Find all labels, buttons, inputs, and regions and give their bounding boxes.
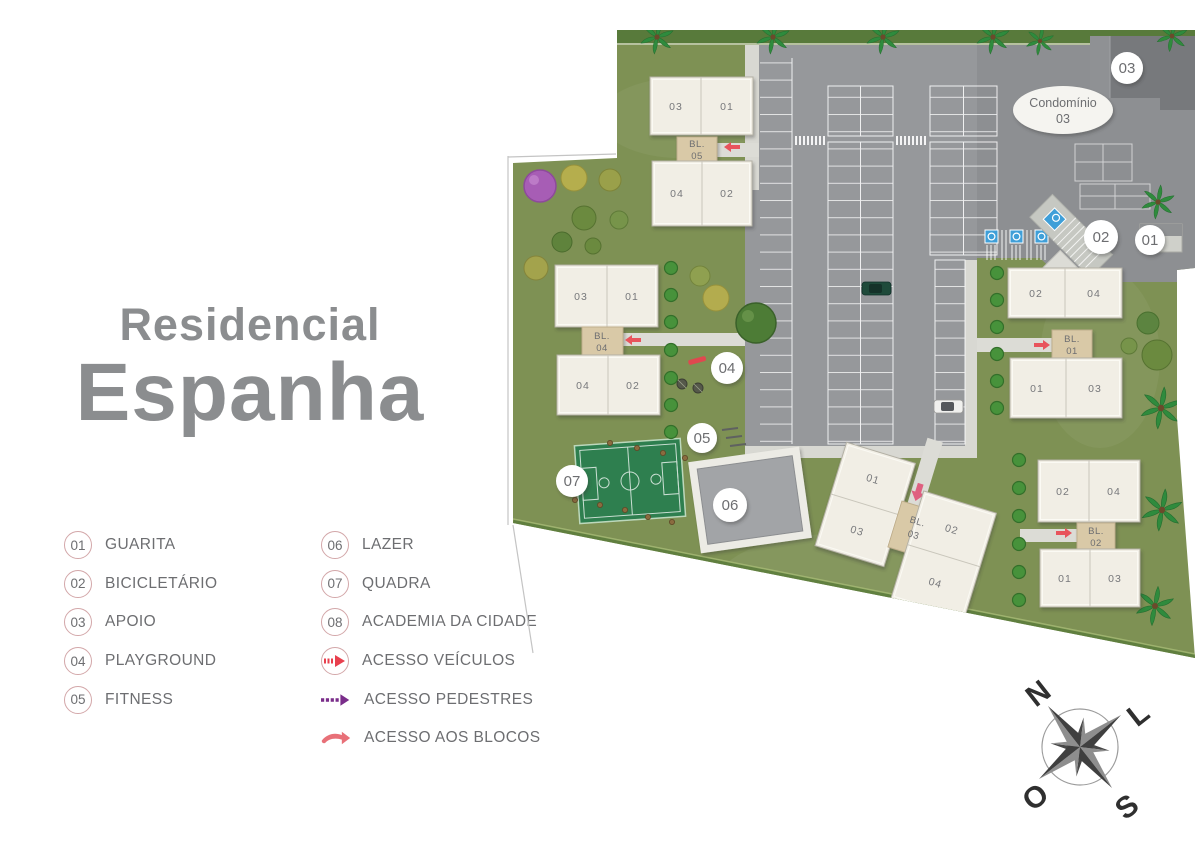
bl04-unit-tl: 03 (574, 291, 588, 303)
bl05-label-line2: 05 (691, 151, 703, 162)
marker-07-quadra: 07 (564, 473, 581, 490)
legend-item-bicicletario: 02 BICICLETÁRIO (64, 565, 217, 604)
bl02-unit-tr: 04 (1107, 486, 1121, 498)
bl05-unit-bl: 04 (670, 188, 684, 200)
legend-label-quadra: QUADRA (362, 575, 431, 593)
legend-num-06: 06 (321, 531, 349, 559)
bl02-unit-bl: 01 (1058, 573, 1072, 585)
bl01-unit-bl: 01 (1030, 383, 1044, 395)
compass-rose: N L O S (985, 655, 1180, 848)
condominio-oval (1013, 86, 1113, 134)
compass-north-label: N (1020, 674, 1057, 713)
legend-label-acesso-blocos: ACESSO AOS BLOCOS (364, 729, 541, 747)
legend-label-apoio: APOIO (105, 613, 156, 631)
page-title: Residencial Espanha (55, 300, 445, 434)
legend-num-04: 04 (64, 647, 92, 675)
bl01-label-line1: BL. (1064, 334, 1080, 345)
sports-court (574, 438, 685, 523)
condo-label-line2: 03 (1056, 112, 1070, 126)
legend-label-lazer: LAZER (362, 536, 414, 554)
legend-label-acesso-veiculos: ACESSO VEÍCULOS (362, 652, 515, 670)
marker-05-fitness: 05 (694, 430, 711, 447)
legend-num-08: 08 (321, 608, 349, 636)
site-plan: 01 03 02 04 BL. 03 (500, 28, 1200, 678)
marker-06-lazer: 06 (722, 497, 739, 514)
parked-car-white (934, 400, 963, 413)
compass-south-label: S (1109, 788, 1145, 826)
legend-label-playground: PLAYGROUND (105, 652, 216, 670)
legend-num-05: 05 (64, 686, 92, 714)
bl05-unit-tl: 03 (669, 101, 683, 113)
legend-label-fitness: FITNESS (105, 691, 173, 709)
bl05-unit-tr: 01 (720, 101, 734, 113)
vehicle-access-icon (321, 647, 349, 675)
compass-west-label: O (1016, 777, 1055, 817)
bl01-unit-br: 03 (1088, 383, 1102, 395)
condo-label-line1: Condomínio (1029, 96, 1096, 110)
legend-num-02: 02 (64, 570, 92, 598)
legend-num-03: 03 (64, 608, 92, 636)
bl04-unit-tr: 01 (625, 291, 639, 303)
marker-03-apoio: 03 (1119, 60, 1136, 77)
bl04-label-line1: BL. (594, 331, 610, 342)
bl04-unit-bl: 04 (576, 380, 590, 392)
legend-num-07: 07 (321, 570, 349, 598)
bl04-unit-br: 02 (626, 380, 640, 392)
bl02-unit-br: 03 (1108, 573, 1122, 585)
block-access-icon (321, 729, 351, 747)
purple-tree (524, 170, 556, 202)
legend-item-apoio: 03 APOIO (64, 603, 217, 642)
legend-label-acesso-pedestres: ACESSO PEDESTRES (364, 691, 533, 709)
compass-east-label: L (1121, 696, 1156, 733)
marker-04-playground: 04 (719, 360, 736, 377)
bl02-unit-tl: 02 (1056, 486, 1070, 498)
bl05-unit-br: 02 (720, 188, 734, 200)
bl01-label-line2: 01 (1066, 346, 1078, 357)
legend-item-guarita: 01 GUARITA (64, 526, 217, 565)
bl02-label-line2: 02 (1090, 538, 1102, 549)
marker-01-guarita: 01 (1142, 232, 1159, 249)
legend-num-01: 01 (64, 531, 92, 559)
pedestrian-access-icon (321, 692, 351, 708)
legend-item-fitness: 05 FITNESS (64, 680, 217, 719)
legend-item-acesso-blocos: ACESSO AOS BLOCOS (321, 719, 541, 758)
title-line-residencial: Residencial (55, 300, 445, 350)
page: Residencial Espanha 01 GUARITA 02 BICICL… (0, 0, 1200, 848)
bl05-label-line1: BL. (689, 139, 705, 150)
lazer-area (688, 447, 812, 554)
bl02-label-line1: BL. (1088, 526, 1104, 537)
legend-item-acesso-pedestres: ACESSO PEDESTRES (321, 680, 541, 719)
legend-label-bicicletario: BICICLETÁRIO (105, 575, 217, 593)
bl01-unit-tl: 02 (1029, 288, 1043, 300)
bl01-unit-tr: 04 (1087, 288, 1101, 300)
marker-02-bicicletario: 02 (1093, 229, 1110, 246)
legend-column-1: 01 GUARITA 02 BICICLETÁRIO 03 APOIO 04 P… (64, 526, 217, 719)
title-line-espanha: Espanha (55, 352, 445, 434)
legend-item-playground: 04 PLAYGROUND (64, 642, 217, 681)
legend-label-guarita: GUARITA (105, 536, 176, 554)
bl04-label-line2: 04 (596, 343, 608, 354)
parked-car-green (862, 282, 891, 295)
